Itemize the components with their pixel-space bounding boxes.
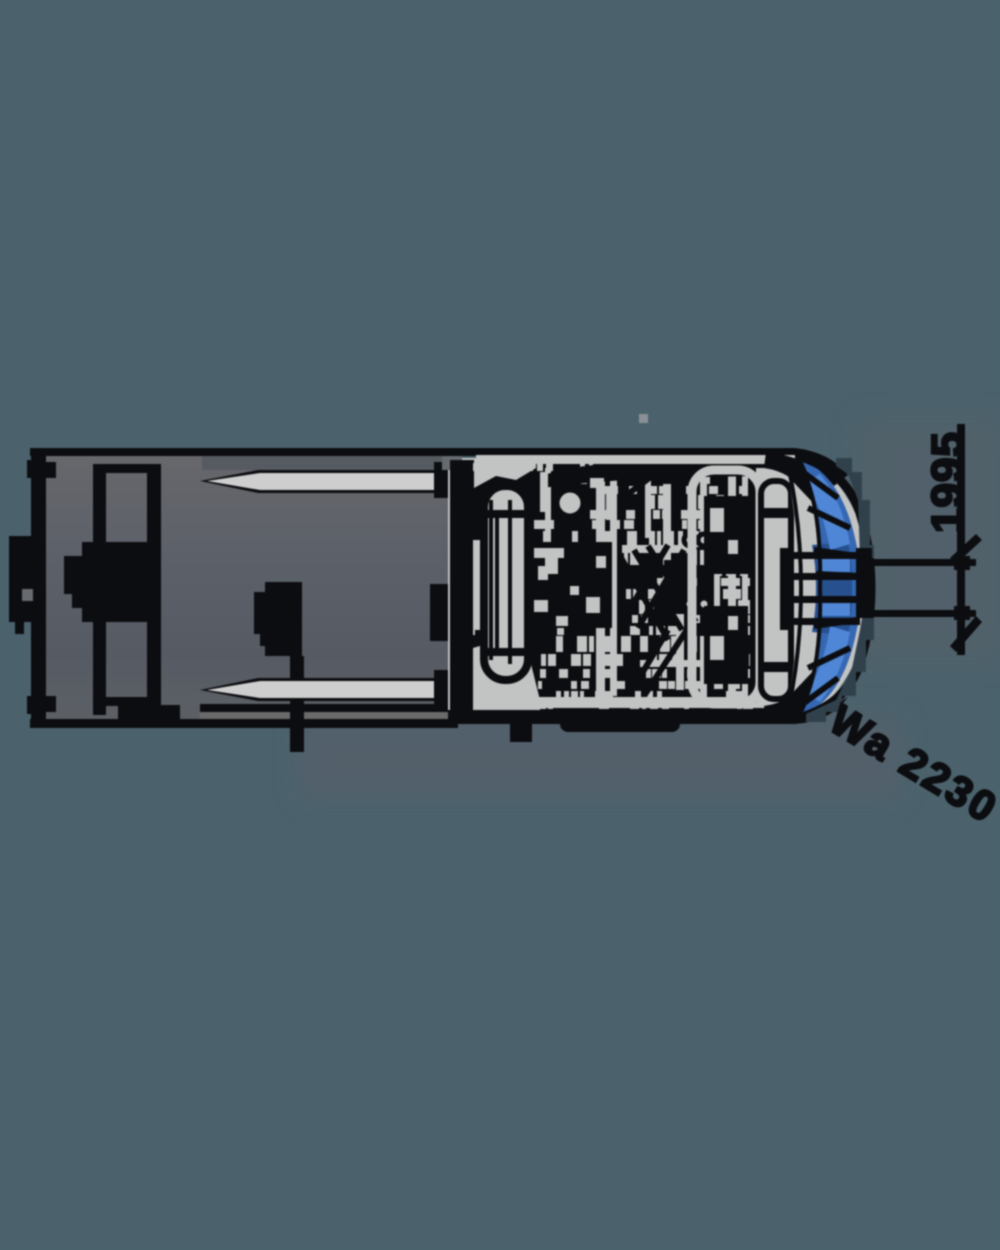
svg-text:1995: 1995	[923, 431, 972, 533]
